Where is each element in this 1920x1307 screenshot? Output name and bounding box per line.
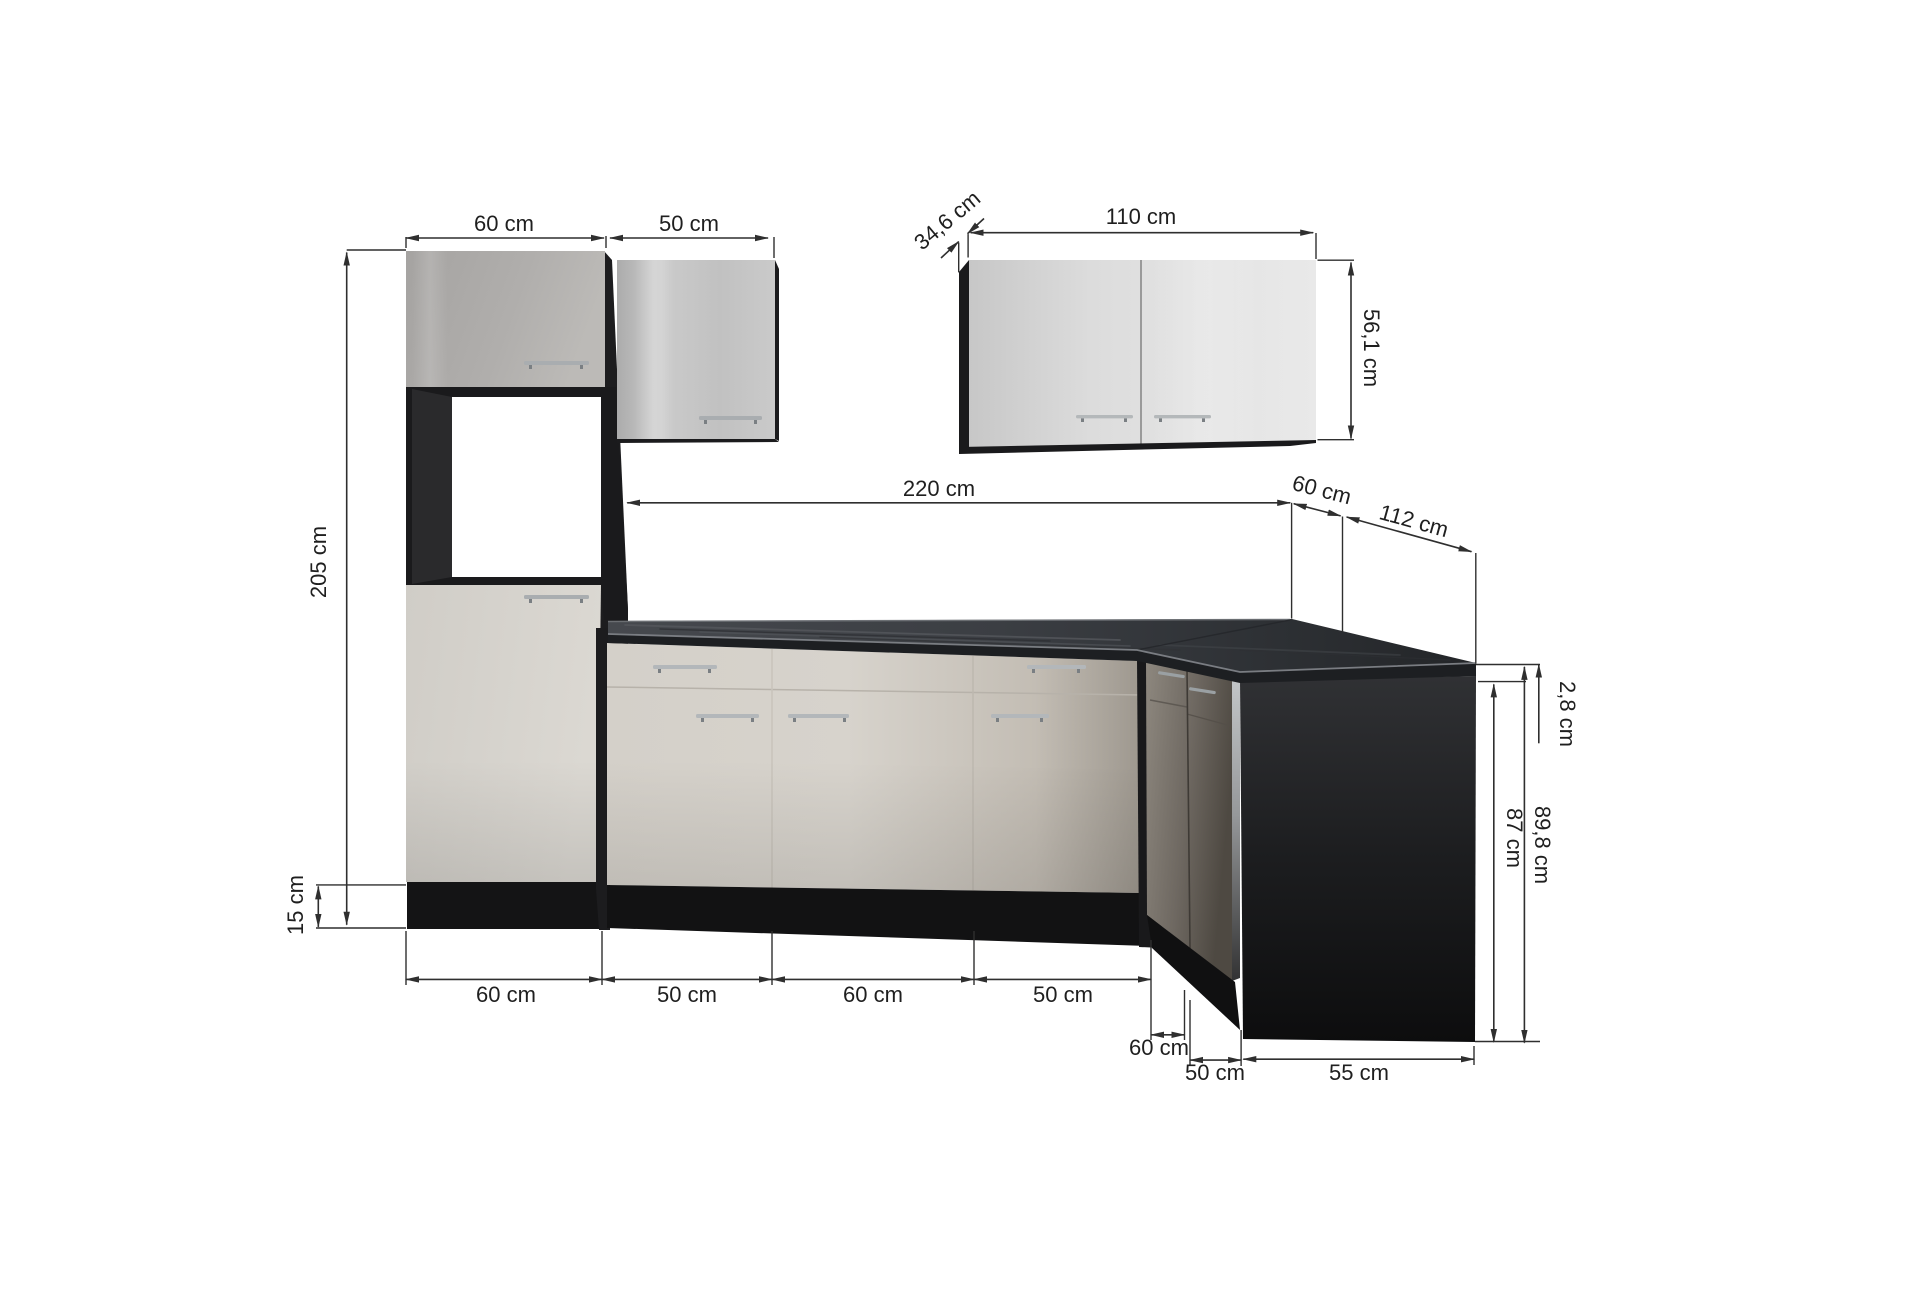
- svg-text:50 cm: 50 cm: [1185, 1060, 1245, 1085]
- svg-text:60 cm: 60 cm: [474, 211, 534, 236]
- svg-text:15 cm: 15 cm: [283, 875, 308, 935]
- svg-text:60 cm: 60 cm: [843, 982, 903, 1007]
- svg-text:50 cm: 50 cm: [659, 211, 719, 236]
- svg-text:50 cm: 50 cm: [657, 982, 717, 1007]
- svg-text:220 cm: 220 cm: [903, 476, 975, 501]
- svg-text:60 cm: 60 cm: [1129, 1035, 1189, 1060]
- svg-text:60 cm: 60 cm: [476, 982, 536, 1007]
- svg-text:2,8 cm: 2,8 cm: [1555, 681, 1580, 747]
- svg-text:205 cm: 205 cm: [306, 526, 331, 598]
- svg-text:89,8 cm: 89,8 cm: [1530, 806, 1555, 884]
- svg-text:56,1 cm: 56,1 cm: [1359, 309, 1384, 387]
- svg-text:87 cm: 87 cm: [1502, 808, 1527, 868]
- svg-text:55 cm: 55 cm: [1329, 1060, 1389, 1085]
- svg-text:110 cm: 110 cm: [1106, 204, 1177, 229]
- svg-text:50 cm: 50 cm: [1033, 982, 1093, 1007]
